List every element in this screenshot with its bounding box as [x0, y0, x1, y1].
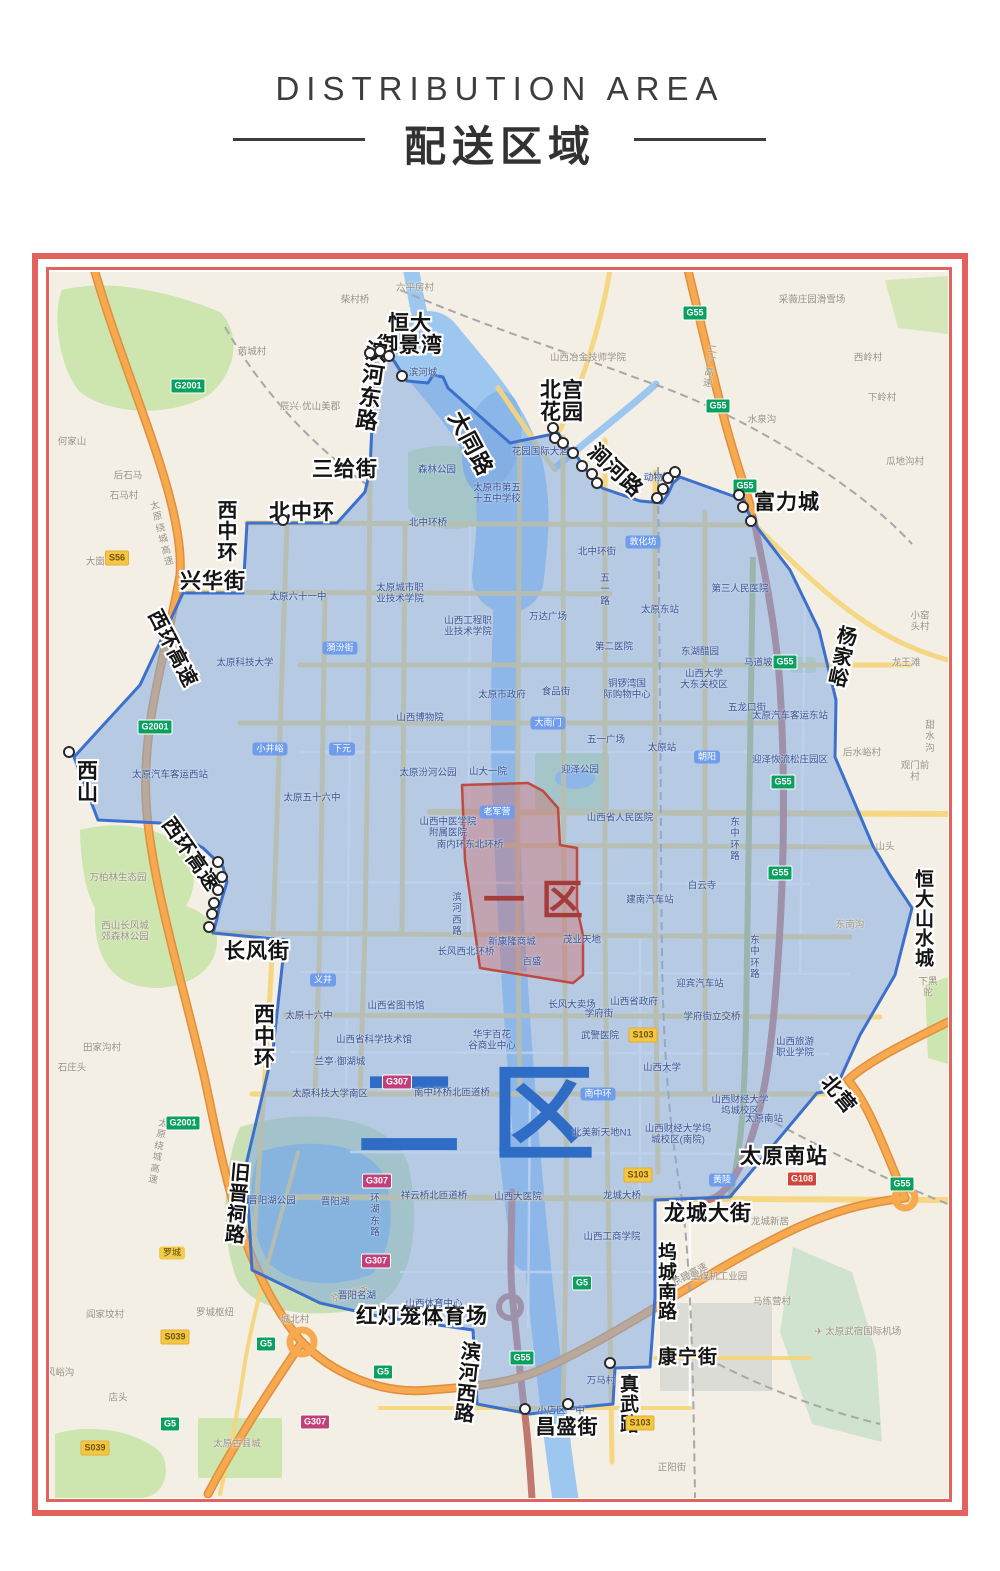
title-divider-right	[634, 138, 766, 141]
page-title-zh: 配送区域	[0, 113, 1000, 174]
page: { "header": { "title_en": "DISTRIBUTION …	[0, 0, 1000, 1571]
page-title-en: DISTRIBUTION AREA	[0, 70, 1000, 108]
industrial-area	[660, 1303, 772, 1391]
basemap-canvas	[50, 272, 948, 1498]
distribution-map: 一区 二区 恒大 御景湾滨 河 东 路大同路北宫 花园涧河路富力城三给街北中环西…	[50, 272, 948, 1498]
title-divider-left	[233, 138, 365, 141]
